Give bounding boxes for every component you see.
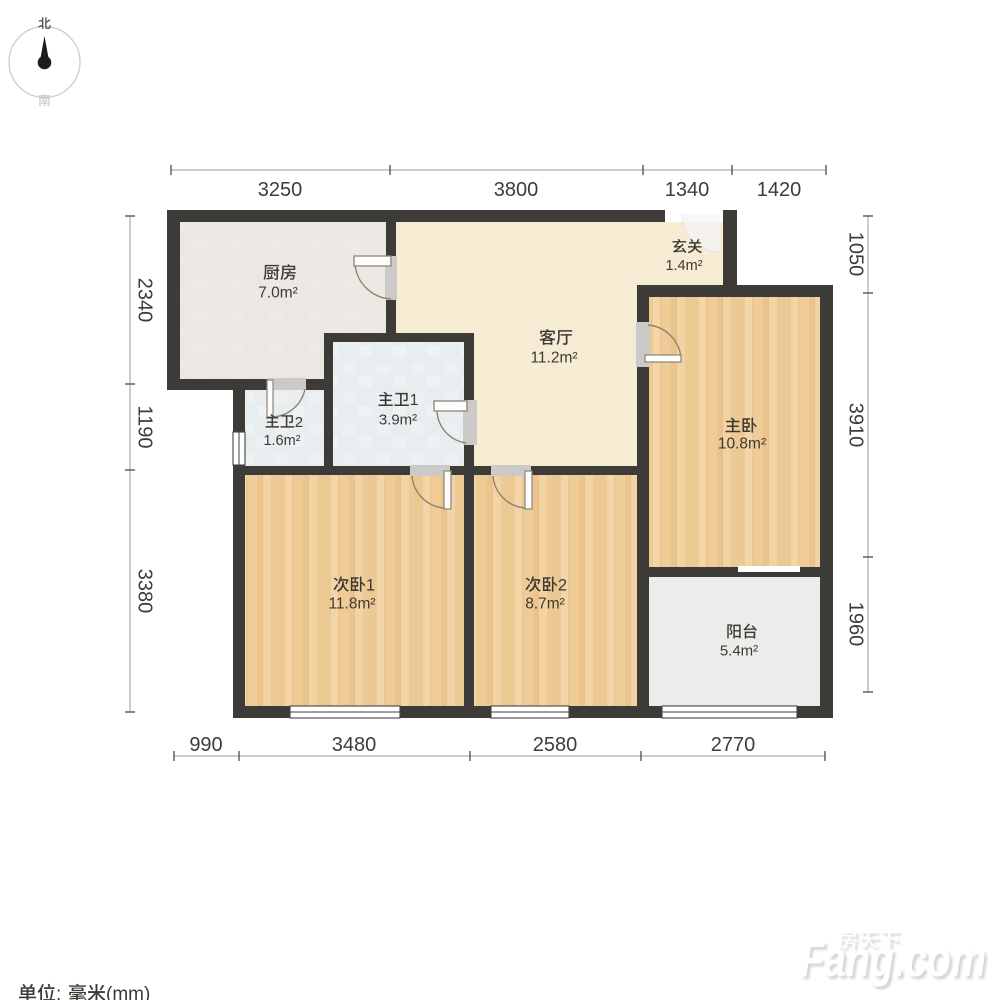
svg-text:10.8m²: 10.8m² bbox=[718, 436, 766, 453]
svg-text:1.6m²: 1.6m² bbox=[263, 433, 300, 449]
svg-text:990: 990 bbox=[189, 734, 222, 756]
svg-text:1.4m²: 1.4m² bbox=[665, 258, 702, 274]
svg-text:1340: 1340 bbox=[665, 179, 710, 201]
svg-text:3250: 3250 bbox=[258, 179, 303, 201]
svg-text:5.4m²: 5.4m² bbox=[720, 642, 758, 659]
svg-text:1: 1 bbox=[366, 576, 375, 594]
svg-text:7.0m²: 7.0m² bbox=[258, 285, 298, 302]
svg-text:11.2m²: 11.2m² bbox=[530, 350, 577, 367]
svg-text:2340: 2340 bbox=[134, 278, 156, 323]
svg-text:2580: 2580 bbox=[533, 734, 578, 756]
svg-text:1: 1 bbox=[410, 392, 419, 409]
svg-text:3.9m²: 3.9m² bbox=[379, 411, 417, 428]
svg-text:2770: 2770 bbox=[711, 734, 756, 756]
svg-text:3380: 3380 bbox=[134, 569, 156, 614]
svg-text:2: 2 bbox=[558, 576, 567, 594]
svg-text:8.7m²: 8.7m² bbox=[525, 596, 565, 613]
svg-text:1050: 1050 bbox=[845, 232, 867, 277]
svg-text:2: 2 bbox=[295, 414, 303, 431]
svg-text:1960: 1960 bbox=[845, 602, 867, 647]
svg-text:Fang.com: Fang.com bbox=[800, 931, 986, 987]
svg-text:3800: 3800 bbox=[494, 179, 539, 201]
svg-text:11.8m²: 11.8m² bbox=[328, 596, 375, 613]
svg-text:(mm): (mm) bbox=[106, 984, 150, 1000]
svg-text:3910: 3910 bbox=[845, 403, 867, 448]
svg-text:3480: 3480 bbox=[332, 734, 377, 756]
svg-text:1190: 1190 bbox=[134, 405, 156, 448]
svg-text::: : bbox=[56, 984, 61, 1000]
svg-text:1420: 1420 bbox=[757, 179, 802, 201]
